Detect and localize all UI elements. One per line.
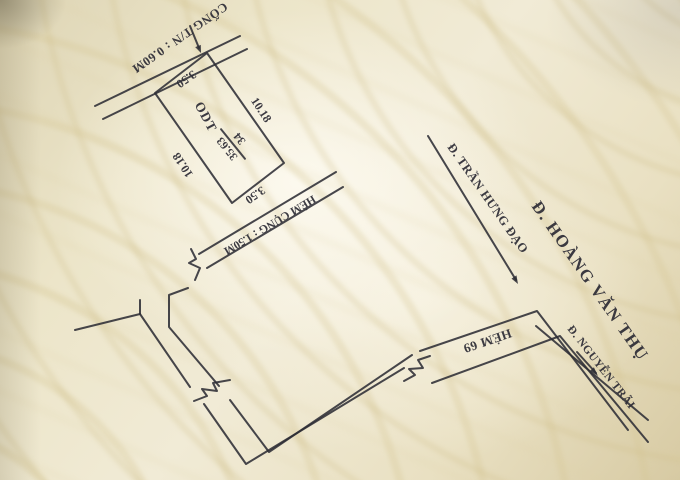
parcel-side-right-label: 10.18 xyxy=(248,95,274,125)
survey-sketch-artwork: CỐNG T/N : 0.60M 3.50 10.18 10.18 ODT 35… xyxy=(0,0,680,480)
cadastral-sketch-photo: CỐNG T/N : 0.60M 3.50 10.18 10.18 ODT 35… xyxy=(0,0,680,480)
parcel-side-left-label: 10.18 xyxy=(169,150,195,180)
street-edge-line-lower xyxy=(103,49,247,119)
street-name-hoang-van-thu: Đ. HOÀNG VĂN THỤ xyxy=(528,197,653,364)
alley-69-label: HẺM 69 xyxy=(461,326,513,357)
parcel-frontage-bottom-label: 3.50 xyxy=(243,184,268,208)
boundary-left-wall-upper xyxy=(75,314,190,387)
boundary-right-wall-upper xyxy=(169,288,219,386)
parcel-frontage-top-label: 3.50 xyxy=(174,68,199,92)
dead-end-alley-label: HẺM CỤNG : 1.50M xyxy=(221,192,318,258)
land-use-code-label: ODT xyxy=(192,99,220,135)
parcel-34-outline xyxy=(155,53,284,203)
line-break-symbol-3 xyxy=(404,356,430,381)
street-tran-hung-dao-arrow-icon xyxy=(512,275,519,284)
boundary-left-wall-lower xyxy=(204,368,404,464)
drain-arrow-icon xyxy=(195,45,201,53)
street-name-tran-hung-dao: Đ. TRẦN HƯNG ĐẠO xyxy=(445,140,532,256)
survey-sketch-svg: CỐNG T/N : 0.60M 3.50 10.18 10.18 ODT 35… xyxy=(0,0,680,480)
boundary-right-wall-lower xyxy=(230,355,412,452)
line-break-symbol-2 xyxy=(194,380,230,401)
